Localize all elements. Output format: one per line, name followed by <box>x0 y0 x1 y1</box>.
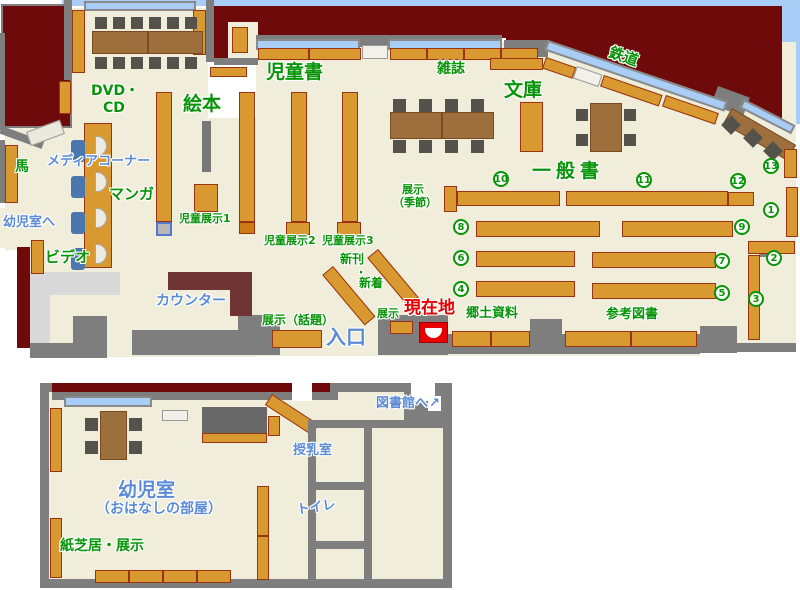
media-chair <box>71 176 85 198</box>
chair <box>129 441 142 454</box>
outside-block-b <box>214 22 228 62</box>
label-to-library: 図書館へ↗ <box>376 397 441 411</box>
bookshelf-1 <box>786 187 798 237</box>
reading-table <box>148 31 203 54</box>
bookshelf <box>239 92 255 222</box>
chair <box>471 140 484 153</box>
chair <box>445 99 458 112</box>
chair <box>624 134 636 146</box>
chair <box>393 99 406 112</box>
label-topic-display: 展示（話題） <box>262 314 334 327</box>
bookshelf-10 <box>457 191 560 206</box>
label-media-corner: メディアコーナー <box>47 155 150 169</box>
wall-bottom <box>530 319 562 354</box>
label-seasonal-display-1: 展示 <box>402 184 424 196</box>
chair <box>167 57 179 69</box>
wall-segment <box>0 33 5 130</box>
chair <box>113 57 125 69</box>
wall-room <box>308 420 452 428</box>
chair <box>576 134 588 146</box>
staff-area <box>30 272 120 295</box>
shelf-number-3: 3 <box>748 291 764 307</box>
magazine-shelf <box>390 48 427 60</box>
label-entrance: 入口 <box>326 326 366 348</box>
wall-outer <box>40 383 49 588</box>
label-infant-room: 幼児室 <box>118 480 175 501</box>
current-location-arc <box>425 328 442 338</box>
shelf-number-8: 8 <box>453 219 469 235</box>
wall-bottom <box>737 343 796 352</box>
shelf-number-13: 13 <box>763 158 779 174</box>
media-chair <box>71 212 85 234</box>
label-counter: カウンター <box>156 294 226 309</box>
label-manga: マンガ <box>109 186 154 203</box>
wall-alcove-left <box>64 0 72 80</box>
window <box>84 1 196 11</box>
reading-table <box>390 112 442 139</box>
bookshelf-11 <box>566 191 728 206</box>
chair <box>113 17 125 29</box>
white-cabinet <box>162 410 188 421</box>
display-shelf <box>390 321 413 334</box>
bookshelf <box>520 102 543 152</box>
shelf-number-1: 1 <box>763 202 779 218</box>
label-horse: 馬 <box>15 160 29 175</box>
chair <box>149 17 161 29</box>
chair <box>85 418 98 431</box>
door-gap <box>292 381 312 401</box>
service-counter <box>168 272 252 290</box>
chair <box>149 57 161 69</box>
label-to-infant-room: 幼児室へ <box>3 216 55 230</box>
label-children-display-3: 児童展示3 <box>322 235 374 247</box>
bookshelf <box>258 48 309 60</box>
bookshelf <box>50 408 62 472</box>
current-location-marker <box>419 322 448 343</box>
library-floor-map: 絵本 児童書 雑誌 文庫 鉄道 一般書 DVD・ CD メディアコーナー 馬 マ… <box>0 0 800 590</box>
chair <box>419 99 432 112</box>
wall-bottom <box>73 316 107 343</box>
label-picture-story: 紙芝居・展示 <box>60 539 144 554</box>
bookshelf-12 <box>728 192 754 206</box>
bookshelf-13 <box>784 149 797 178</box>
bookshelf-7 <box>592 252 716 268</box>
label-nursing-room: 授乳室 <box>293 444 332 458</box>
topic-display-shelf <box>272 330 322 348</box>
label-display: 展示 <box>377 308 399 320</box>
magazine-shelf <box>427 48 464 60</box>
label-general-books: 一般書 <box>532 161 604 182</box>
reference-shelf <box>565 331 631 347</box>
chair <box>576 109 588 121</box>
manga-shelf <box>156 92 172 222</box>
chair <box>95 17 107 29</box>
label-local-materials: 郷土資料 <box>466 307 518 321</box>
label-dvd-cd-line1: DVD・ <box>91 84 139 99</box>
picture-story-shelf <box>95 570 129 583</box>
chair <box>419 140 432 153</box>
reference-shelf <box>631 331 697 347</box>
chair <box>85 441 98 454</box>
label-children-display-2: 児童展示2 <box>264 235 316 247</box>
wall-alcove-right <box>206 0 214 62</box>
picture-story-shelf <box>197 570 231 583</box>
local-materials-shelf <box>491 331 530 347</box>
shelf-number-5: 5 <box>714 285 730 301</box>
chair <box>131 57 143 69</box>
chair <box>445 140 458 153</box>
service-counter <box>230 290 252 316</box>
outside-block-top <box>258 6 506 38</box>
bookshelf-5 <box>592 283 716 299</box>
wall-room <box>308 482 372 490</box>
bookshelf-8 <box>476 221 600 237</box>
stage <box>202 407 267 433</box>
label-video: ビデオ <box>45 249 90 266</box>
chair <box>471 99 484 112</box>
picture-story-shelf <box>163 570 197 583</box>
label-paperbacks: 文庫 <box>504 80 542 101</box>
window <box>64 396 152 407</box>
children-display-1-shelf <box>194 184 218 212</box>
pillar <box>202 121 211 172</box>
reading-table <box>590 103 622 152</box>
label-children-display-1: 児童展示1 <box>179 213 231 225</box>
shelf-number-4: 4 <box>453 281 469 297</box>
shelf-number-12: 12 <box>730 173 746 189</box>
label-reference-books: 参考図書 <box>606 308 658 322</box>
bookshelf <box>342 92 358 222</box>
bookshelf <box>257 486 269 536</box>
bookshelf <box>72 10 85 73</box>
chair <box>95 57 107 69</box>
chair <box>129 418 142 431</box>
exit-arrow-icon: ↗ <box>428 396 441 411</box>
shelf-number-9: 9 <box>734 219 750 235</box>
white-cabinet <box>362 45 388 59</box>
reading-table <box>92 31 148 54</box>
bookshelf <box>291 92 307 222</box>
bookshelf <box>268 416 280 436</box>
wall-bottom <box>700 326 737 353</box>
bookshelf <box>59 81 71 114</box>
shelf-number-10: 10 <box>493 171 509 187</box>
shelf-number-7: 7 <box>714 253 730 269</box>
local-materials-shelf <box>452 331 491 347</box>
outside-block-a <box>214 6 258 22</box>
label-dvd-cd-line2: CD <box>103 101 125 116</box>
chair <box>185 17 197 29</box>
chair <box>131 17 143 29</box>
label-magazines: 雑誌 <box>437 62 465 77</box>
wall-room <box>364 424 372 582</box>
bookshelf <box>257 536 269 580</box>
label-storytelling-room: （おはなしの部屋） <box>96 502 222 517</box>
label-to-library-text: 図書館へ <box>376 396 428 411</box>
label-seasonal-display-2: （季節） <box>393 197 437 209</box>
shelf-number-2: 2 <box>766 250 782 266</box>
label-new-books-1: 新刊 <box>340 253 364 266</box>
bookshelf-6 <box>476 251 575 267</box>
chair <box>185 57 197 69</box>
bookshelf <box>210 67 247 77</box>
bookshelf <box>309 48 361 60</box>
wall-bottom <box>30 343 107 358</box>
bookshelf-9 <box>622 221 733 237</box>
label-children-books: 児童書 <box>266 62 323 83</box>
bookshelf <box>202 433 267 443</box>
shelf-number-6: 6 <box>453 250 469 266</box>
video-shelf <box>31 240 44 274</box>
wall-bottom <box>132 330 238 355</box>
seasonal-display-shelf <box>444 186 457 212</box>
shelf-number-11: 11 <box>636 172 652 188</box>
children-table <box>100 411 127 460</box>
display-box <box>156 222 172 236</box>
label-current-location: 現在地 <box>404 299 455 318</box>
picture-story-shelf <box>129 570 163 583</box>
chair <box>624 109 636 121</box>
label-picture-books: 絵本 <box>183 94 221 115</box>
bookshelf-end <box>239 222 255 234</box>
bookshelf-4 <box>476 281 575 297</box>
bookshelf <box>490 58 543 70</box>
wall-segment <box>214 58 258 65</box>
wall-room <box>308 541 372 549</box>
chair <box>167 17 179 29</box>
chair <box>393 140 406 153</box>
label-new-books-2: 新着 <box>359 277 383 290</box>
bookshelf <box>232 27 248 53</box>
reading-table <box>442 112 494 139</box>
outside-strip-left <box>17 247 30 348</box>
